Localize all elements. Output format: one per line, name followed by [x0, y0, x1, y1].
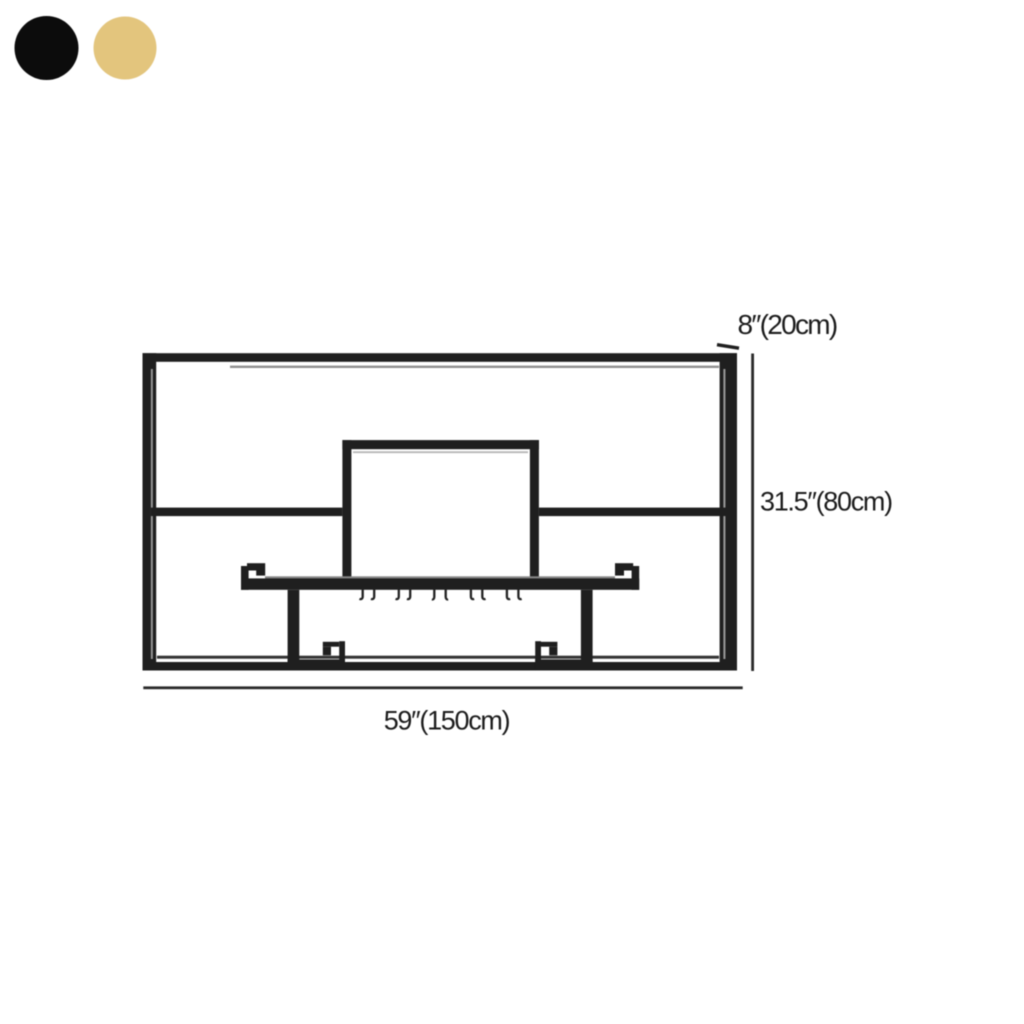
svg-text:59″(150cm): 59″(150cm) [384, 706, 510, 736]
svg-text:8″(20cm): 8″(20cm) [737, 309, 836, 340]
svg-text:31.5″(80cm): 31.5″(80cm) [760, 487, 892, 517]
